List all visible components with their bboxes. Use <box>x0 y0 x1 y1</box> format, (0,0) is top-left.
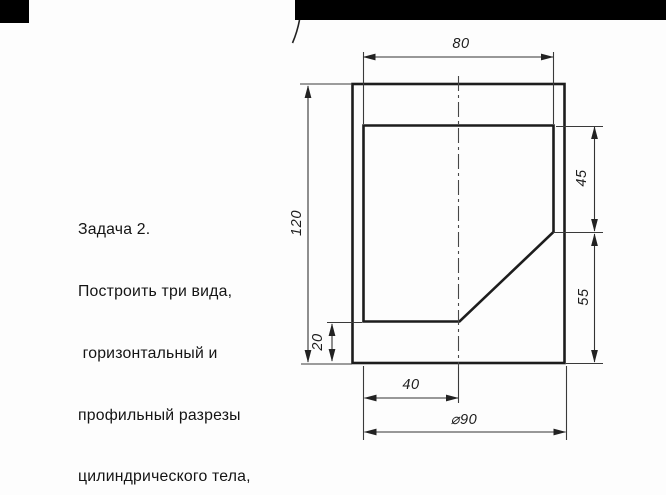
dim-label-20: 20 <box>310 324 326 360</box>
dim-label-80: 80 <box>443 36 479 52</box>
dim-label-45: 45 <box>574 160 590 196</box>
technical-drawing <box>0 0 666 495</box>
dimension-lines <box>308 57 595 432</box>
extension-lines <box>300 52 603 440</box>
dim-label-40: 40 <box>392 377 430 393</box>
pen-stroke-mark <box>293 20 300 43</box>
dim-label-diameter-90: ⌀90 <box>432 412 496 428</box>
dim-label-120: 120 <box>289 202 305 244</box>
dim-label-55: 55 <box>576 279 592 315</box>
scanned-page: Задача 2. Построить три вида, горизонтал… <box>0 0 666 495</box>
